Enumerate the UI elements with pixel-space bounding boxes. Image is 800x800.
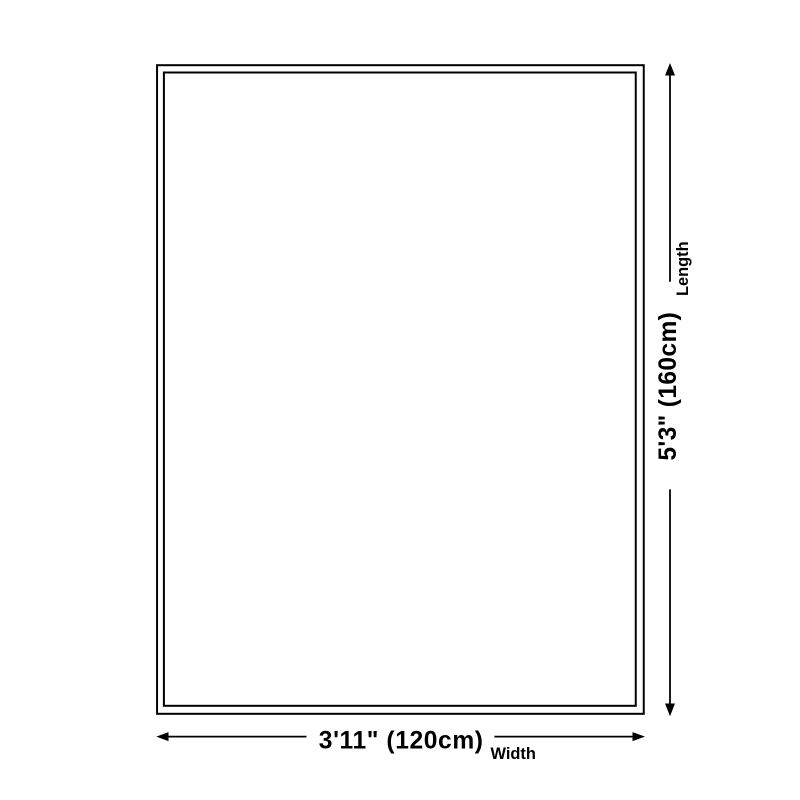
svg-text:5'3" (160cm): 5'3" (160cm): [655, 312, 682, 461]
svg-text:Width: Width: [491, 745, 536, 763]
svg-text:3'11" (120cm): 3'11" (120cm): [319, 728, 484, 755]
svg-text:Length: Length: [674, 241, 692, 296]
